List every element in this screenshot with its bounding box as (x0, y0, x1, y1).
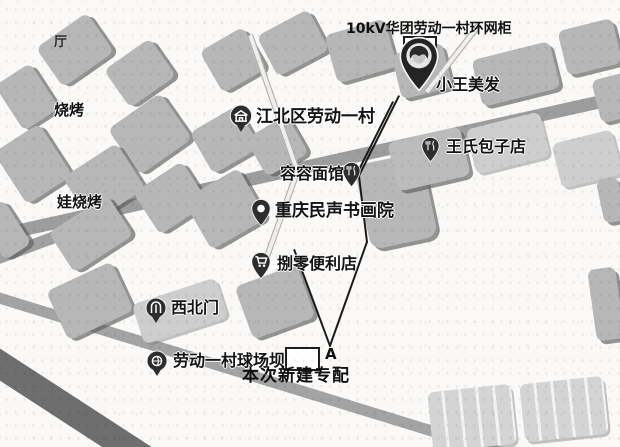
point-a-label: A (325, 346, 337, 363)
poi-label-wangshi-baozi: 王氏包子店 (446, 138, 526, 156)
poi-label-minsheng-academy: 重庆民声书画院 (275, 202, 394, 221)
equipment-title: 10kV华团劳动一村环网柜 (346, 22, 512, 37)
building (0, 63, 59, 131)
poi-marker-xiaowang-salon (397, 35, 441, 93)
poi-marker-rongrong-noodles (341, 161, 362, 188)
location-pin-icon (250, 198, 272, 227)
building (36, 13, 114, 88)
parking-lot (427, 384, 517, 447)
sports-ball-marker-icon (145, 350, 169, 378)
building (587, 266, 620, 341)
parking-lot (519, 376, 609, 442)
poi-label-jiangbei-laodong: 江北区劳动一村 (256, 108, 375, 127)
poi-label-baling-store: 捌零便利店 (277, 255, 357, 273)
building (557, 18, 620, 76)
poi-marker-jiangbei-laodong (228, 104, 254, 134)
poi-marker-minsheng-academy (250, 198, 272, 227)
building (257, 9, 330, 77)
poi-marker-wangshi-baozi (420, 136, 441, 163)
poi-label-northwest-gate: 西北门 (171, 299, 219, 317)
food-pin-icon (341, 161, 362, 188)
shopping-cart-pin-icon (250, 251, 272, 280)
building (596, 176, 620, 224)
building (591, 73, 620, 124)
poi-label-bbq: 烧烤 (54, 102, 84, 119)
building (471, 41, 560, 107)
new-build-label: 本次新建专配 (242, 367, 350, 386)
poi-marker-baling-store (250, 251, 272, 280)
poi-marker-sports-ground (145, 350, 169, 378)
poi-marker-northwest-gate (144, 297, 168, 325)
building-round-marker-icon (228, 104, 254, 134)
barber-head-pin-icon (397, 35, 441, 93)
scanned-map-page: 10kV华团劳动一村环网柜 小王美发 江北区劳动一村 王氏包子店 容容面馆 重庆… (0, 0, 620, 447)
partial-label-ting: 厅 (54, 36, 67, 50)
poi-label-wawa-bbq: 娃烧烤 (57, 194, 102, 211)
poi-label-rongrong-noodles: 容容面馆 (280, 165, 344, 183)
building (104, 38, 176, 108)
food-pin-icon (420, 136, 441, 163)
gate-round-marker-icon (144, 297, 168, 325)
poi-label-xiaowang-salon: 小王美发 (436, 76, 500, 94)
